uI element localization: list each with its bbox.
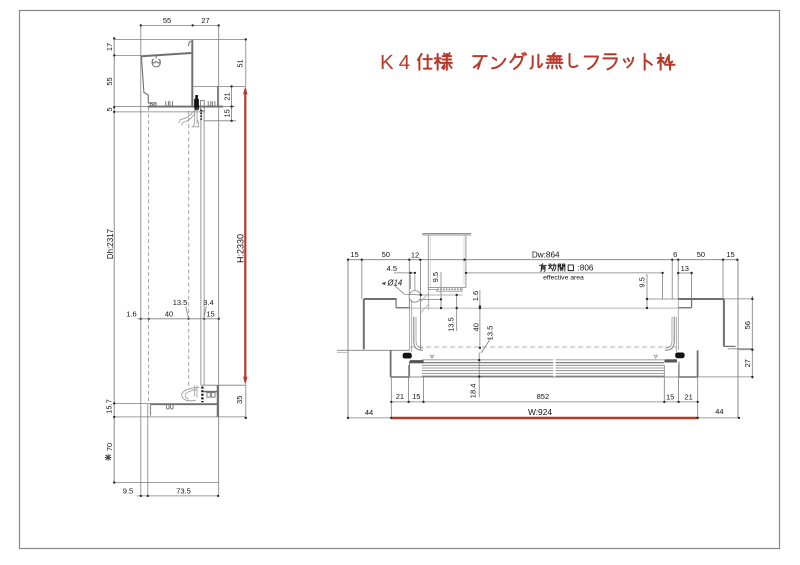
svg-text:13.5: 13.5	[486, 326, 495, 341]
svg-text:W:924: W:924	[528, 407, 552, 417]
svg-text:12: 12	[411, 250, 419, 259]
svg-text:56: 56	[743, 321, 752, 329]
svg-text:15: 15	[350, 250, 358, 259]
svg-text:27: 27	[201, 16, 209, 25]
svg-text:4.5: 4.5	[387, 264, 397, 273]
svg-text:13.5: 13.5	[173, 298, 188, 307]
svg-text:27: 27	[743, 359, 752, 367]
svg-text:55: 55	[163, 16, 171, 25]
svg-text:3.4: 3.4	[203, 298, 213, 307]
svg-text:4: 4	[399, 51, 410, 74]
svg-text:15: 15	[412, 392, 420, 401]
svg-text:9.5: 9.5	[123, 487, 133, 496]
svg-text:15: 15	[726, 250, 734, 259]
svg-text:40: 40	[165, 310, 173, 319]
svg-text:15: 15	[206, 310, 214, 319]
svg-text:50: 50	[697, 250, 705, 259]
svg-text:17: 17	[105, 43, 114, 51]
svg-text:852: 852	[537, 392, 550, 401]
svg-text:13.5: 13.5	[447, 317, 456, 332]
svg-text:Dh:2317: Dh:2317	[106, 228, 115, 259]
svg-text:50: 50	[382, 250, 390, 259]
svg-text:15: 15	[666, 392, 674, 401]
svg-text:35: 35	[235, 396, 244, 404]
svg-text:9.5: 9.5	[431, 272, 440, 282]
svg-text:1.6: 1.6	[126, 310, 136, 319]
svg-text:40: 40	[472, 323, 481, 331]
svg-text:73.5: 73.5	[176, 487, 191, 496]
svg-text:55: 55	[105, 77, 114, 85]
svg-text:44: 44	[715, 407, 723, 416]
svg-text:Dw:864: Dw:864	[532, 251, 560, 260]
svg-text:6: 6	[673, 250, 677, 259]
svg-text::806: :806	[578, 264, 594, 273]
svg-text:9.5: 9.5	[637, 277, 646, 287]
svg-text:H:2330: H:2330	[235, 234, 245, 263]
svg-text:15.7: 15.7	[105, 399, 114, 414]
svg-text:1.6: 1.6	[471, 291, 480, 301]
svg-text:18.4: 18.4	[469, 384, 478, 399]
svg-text:5: 5	[105, 107, 114, 111]
svg-text:70: 70	[105, 443, 114, 451]
svg-text:effective area: effective area	[543, 275, 584, 282]
svg-text:51: 51	[235, 59, 244, 67]
svg-text:15: 15	[222, 109, 231, 117]
svg-text:21: 21	[396, 392, 404, 401]
svg-text:K: K	[380, 51, 394, 74]
svg-text:21: 21	[684, 392, 692, 401]
svg-text:Ø14: Ø14	[387, 279, 403, 288]
svg-text:13: 13	[681, 264, 689, 273]
svg-text:21: 21	[222, 92, 231, 100]
svg-text:44: 44	[365, 408, 373, 417]
